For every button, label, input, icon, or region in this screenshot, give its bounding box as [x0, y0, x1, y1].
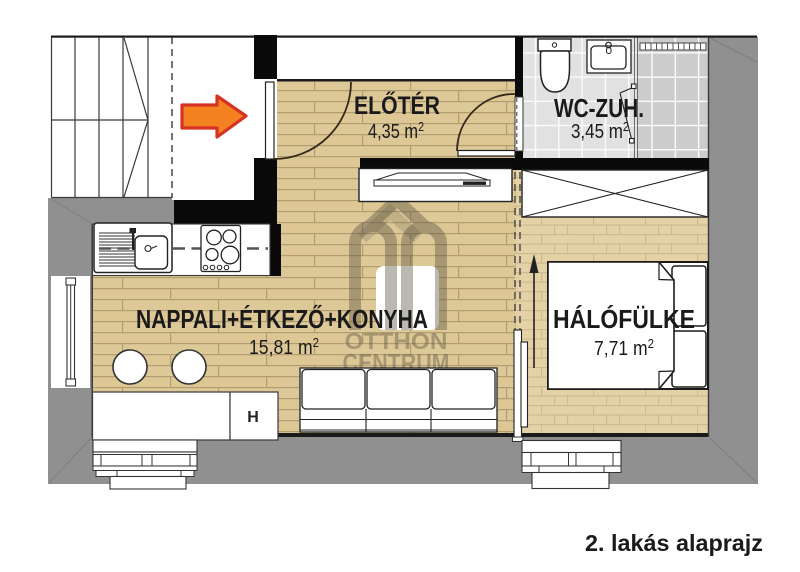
svg-text:4,35 m2: 4,35 m2 [368, 119, 424, 143]
svg-text:7,71 m2: 7,71 m2 [594, 336, 654, 360]
svg-text:H: H [247, 409, 259, 426]
svg-text:HÁLÓFÜLKE: HÁLÓFÜLKE [553, 304, 695, 334]
svg-text:2. lakás alaprajz: 2. lakás alaprajz [585, 530, 763, 556]
svg-text:ELŐTÉR: ELŐTÉR [354, 91, 440, 120]
svg-text:15,81 m2: 15,81 m2 [249, 335, 319, 359]
svg-text:WC-ZUH.: WC-ZUH. [554, 93, 644, 123]
svg-text:NAPPALI+ÉTKEZŐ+KONYHA: NAPPALI+ÉTKEZŐ+KONYHA [136, 304, 428, 334]
svg-text:3,45 m2: 3,45 m2 [571, 119, 629, 143]
